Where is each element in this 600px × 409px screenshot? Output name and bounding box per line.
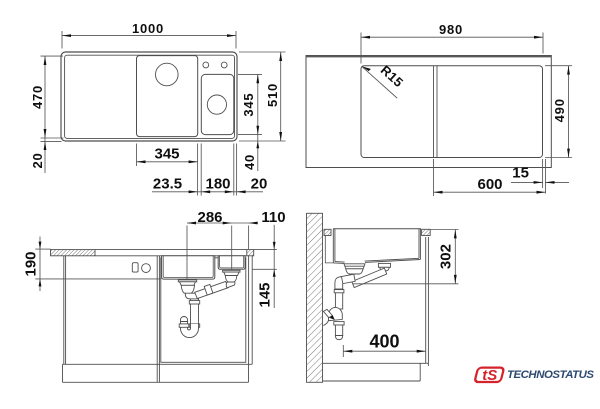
svg-text:20: 20	[30, 152, 45, 168]
svg-text:TECHNOSTATUS: TECHNOSTATUS	[507, 369, 594, 381]
svg-text:180: 180	[205, 176, 230, 193]
svg-text:490: 490	[552, 98, 567, 122]
svg-text:1000: 1000	[132, 21, 164, 36]
svg-text:40: 40	[242, 154, 257, 170]
svg-text:110: 110	[261, 209, 285, 226]
svg-text:15: 15	[512, 165, 529, 182]
svg-text:20: 20	[251, 176, 268, 193]
svg-text:600: 600	[477, 176, 502, 193]
svg-text:tS: tS	[482, 367, 497, 384]
svg-text:400: 400	[369, 332, 399, 352]
svg-text:190: 190	[23, 251, 40, 276]
svg-text:980: 980	[439, 22, 463, 37]
svg-text:510: 510	[265, 83, 280, 107]
svg-text:345: 345	[241, 93, 256, 117]
svg-text:23.5: 23.5	[153, 176, 182, 193]
svg-text:302: 302	[437, 244, 454, 269]
svg-text:470: 470	[30, 85, 45, 109]
svg-text:R15: R15	[378, 62, 407, 90]
svg-text:345: 345	[154, 145, 179, 162]
svg-text:286: 286	[197, 209, 222, 226]
svg-text:145: 145	[257, 282, 274, 307]
